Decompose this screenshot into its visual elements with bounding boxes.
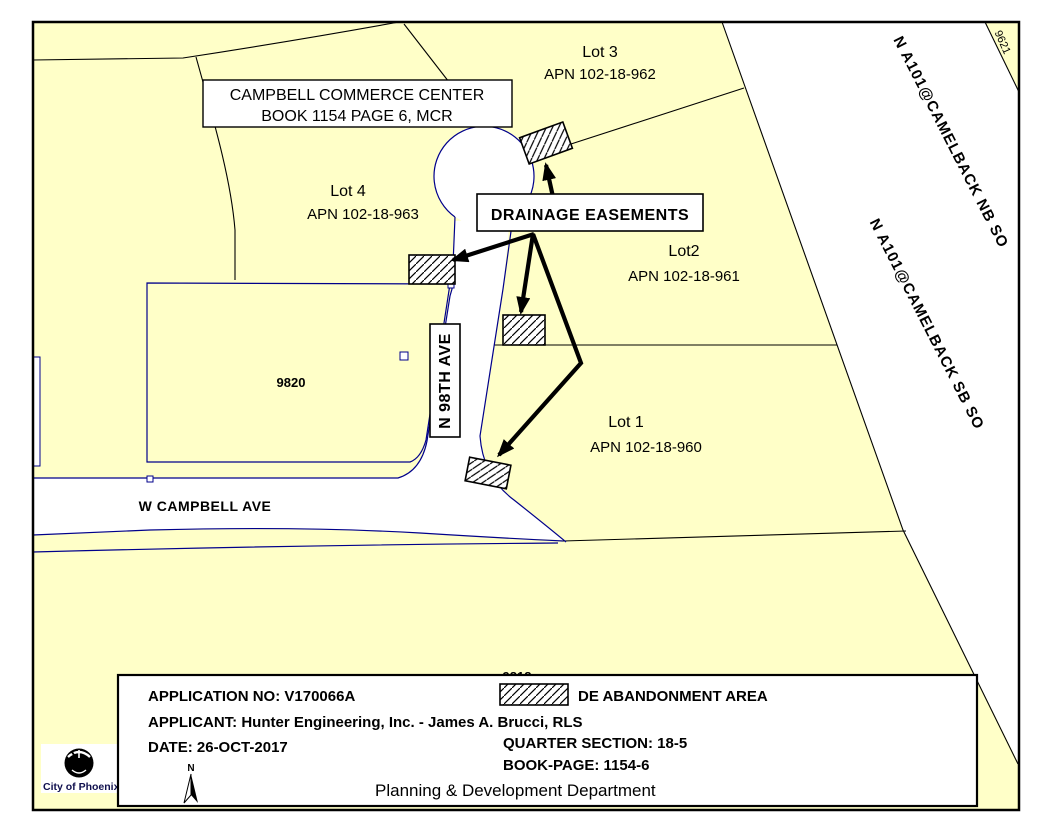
abandonment-hatch-area-middle (503, 315, 545, 345)
lot3-apn: APN 102-18-962 (544, 66, 656, 83)
north-label: N (187, 763, 194, 774)
date: DATE: 26-OCT-2017 (148, 739, 288, 756)
building-9820-number: 9820 (277, 375, 306, 390)
book-page: BOOK-PAGE: 1154-6 (503, 757, 649, 774)
abandonment-legend-label: DE ABANDONMENT AREA (578, 688, 768, 705)
application-number: APPLICATION NO: V170066A (148, 688, 355, 705)
abandonment-legend-swatch (500, 684, 568, 705)
commerce-center-line1: CAMPBELL COMMERCE CENTER (230, 87, 485, 104)
lot1-name: Lot 1 (608, 414, 644, 431)
applicant: APPLICANT: Hunter Engineering, Inc. - Ja… (148, 714, 583, 731)
lot3-name: Lot 3 (582, 44, 618, 61)
info-box: APPLICATION NO: V170066A DE ABANDONMENT … (118, 675, 977, 806)
commerce-center-line2: BOOK 1154 PAGE 6, MCR (261, 108, 452, 125)
lot2-name: Lot2 (668, 243, 699, 260)
plat-map-page: 9818 CAMPBELL COMMERCE CENTER BOOK 1154 … (0, 0, 1056, 816)
lot2-apn: APN 102-18-961 (628, 268, 740, 285)
logo-text: City of Phoenix (43, 781, 120, 793)
lot4-apn: APN 102-18-963 (307, 206, 419, 223)
lot1-apn: APN 102-18-960 (590, 439, 702, 456)
98th-ave-label: N 98TH AVE (437, 333, 454, 429)
lot4-name: Lot 4 (330, 183, 366, 200)
campbell-ave-label: W CAMPBELL AVE (139, 498, 272, 514)
department-name: Planning & Development Department (375, 781, 656, 800)
drainage-easements-label: DRAINAGE EASEMENTS (491, 207, 689, 224)
phoenix-bird-icon (65, 749, 94, 778)
city-of-phoenix-logo: City of Phoenix (41, 744, 120, 793)
abandonment-hatch-area-west (409, 255, 455, 284)
map-marker-square (147, 476, 153, 482)
map-marker-square (400, 352, 408, 360)
quarter-section: QUARTER SECTION: 18-5 (503, 735, 687, 752)
plat-map-canvas: 9818 CAMPBELL COMMERCE CENTER BOOK 1154 … (0, 0, 1056, 816)
